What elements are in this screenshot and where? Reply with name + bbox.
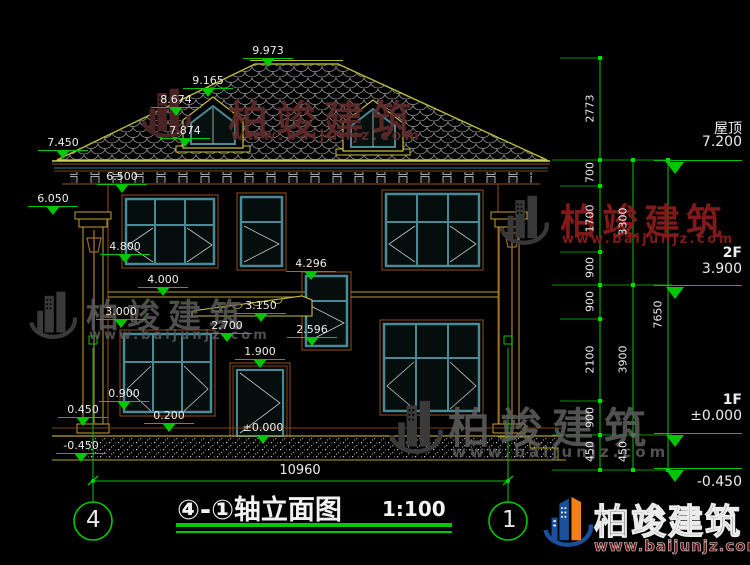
- chain-dim: 3300: [617, 200, 630, 244]
- title-underline: [176, 523, 452, 527]
- level-mark: 2.700: [202, 319, 252, 334]
- floor-name: 1F: [656, 392, 742, 408]
- chain-dim: 700: [584, 151, 597, 195]
- axis-bubble-4: 4: [86, 507, 101, 533]
- level-mark: 0.450: [58, 403, 108, 418]
- level-mark: ±0.000: [238, 421, 288, 436]
- level-mark: 0.900: [99, 387, 149, 402]
- floor-value: 7.200: [656, 134, 742, 150]
- chain-dim: 7650: [652, 293, 665, 337]
- axis-bubble-1: 1: [502, 507, 517, 533]
- overall-dimension: 10960: [275, 463, 325, 478]
- window-2f-right: [382, 190, 483, 270]
- watermark-url: www.baijunjz.com: [452, 443, 669, 461]
- floor-level-line: [654, 468, 742, 469]
- floor-value: -0.450: [656, 474, 742, 490]
- level-mark: 4.296: [286, 257, 336, 272]
- level-mark: 6.500: [97, 170, 147, 185]
- level-mark: 4.000: [138, 273, 188, 288]
- window-2f-middle: [237, 193, 286, 270]
- level-mark: 3.000: [96, 305, 146, 320]
- floor-level-line: [654, 433, 742, 434]
- floor-level-line: [654, 285, 742, 286]
- level-mark: 4.800: [100, 240, 150, 255]
- elevation-drawing: 柏竣建筑 www.baijunjz.com 柏竣建筑 www.baijunjz.…: [0, 0, 750, 565]
- watermark-logo-icon: [498, 189, 550, 251]
- chain-dim: 1700: [584, 197, 597, 241]
- chain-dim: 2100: [584, 338, 597, 382]
- level-mark: 9.165: [183, 74, 233, 89]
- drawing-scale: 1:100: [382, 497, 446, 521]
- watermark-logo-icon: [28, 282, 78, 348]
- company-logo-url: www.baijunjz.com: [594, 537, 750, 555]
- drawing-title: ④-①轴立面图: [177, 488, 342, 527]
- watermark-url: www.baijunjz.com: [231, 128, 422, 144]
- title-underline-thin: [176, 531, 452, 533]
- chain-dim: 450: [584, 430, 597, 474]
- level-mark: 3.150: [236, 299, 286, 314]
- chain-dim: 3900: [617, 338, 630, 382]
- level-mark: 1.900: [235, 345, 285, 360]
- chain-dim: 900: [584, 280, 597, 324]
- chain-dim: 450: [617, 430, 630, 474]
- floor-value: ±0.000: [656, 408, 742, 424]
- level-mark: 0.200: [144, 409, 194, 424]
- level-mark: 2.596: [287, 323, 337, 338]
- level-mark: 8.674: [151, 93, 201, 108]
- watermark-logo-icon: [388, 392, 444, 462]
- cad-linework: [0, 0, 750, 565]
- floor-level-line: [654, 160, 742, 161]
- floor-value: 3.900: [656, 261, 742, 277]
- level-mark: 6.050: [28, 192, 78, 207]
- company-logo-icon: [542, 491, 594, 553]
- chain-dim: 2773: [584, 87, 597, 131]
- window-2f-left: [122, 195, 218, 268]
- level-mark: 7.874: [160, 124, 210, 139]
- level-mark: 9.973: [243, 44, 293, 59]
- level-mark: -0.450: [56, 439, 106, 454]
- level-mark: 7.450: [38, 136, 88, 151]
- floor-name: 2F: [656, 245, 742, 261]
